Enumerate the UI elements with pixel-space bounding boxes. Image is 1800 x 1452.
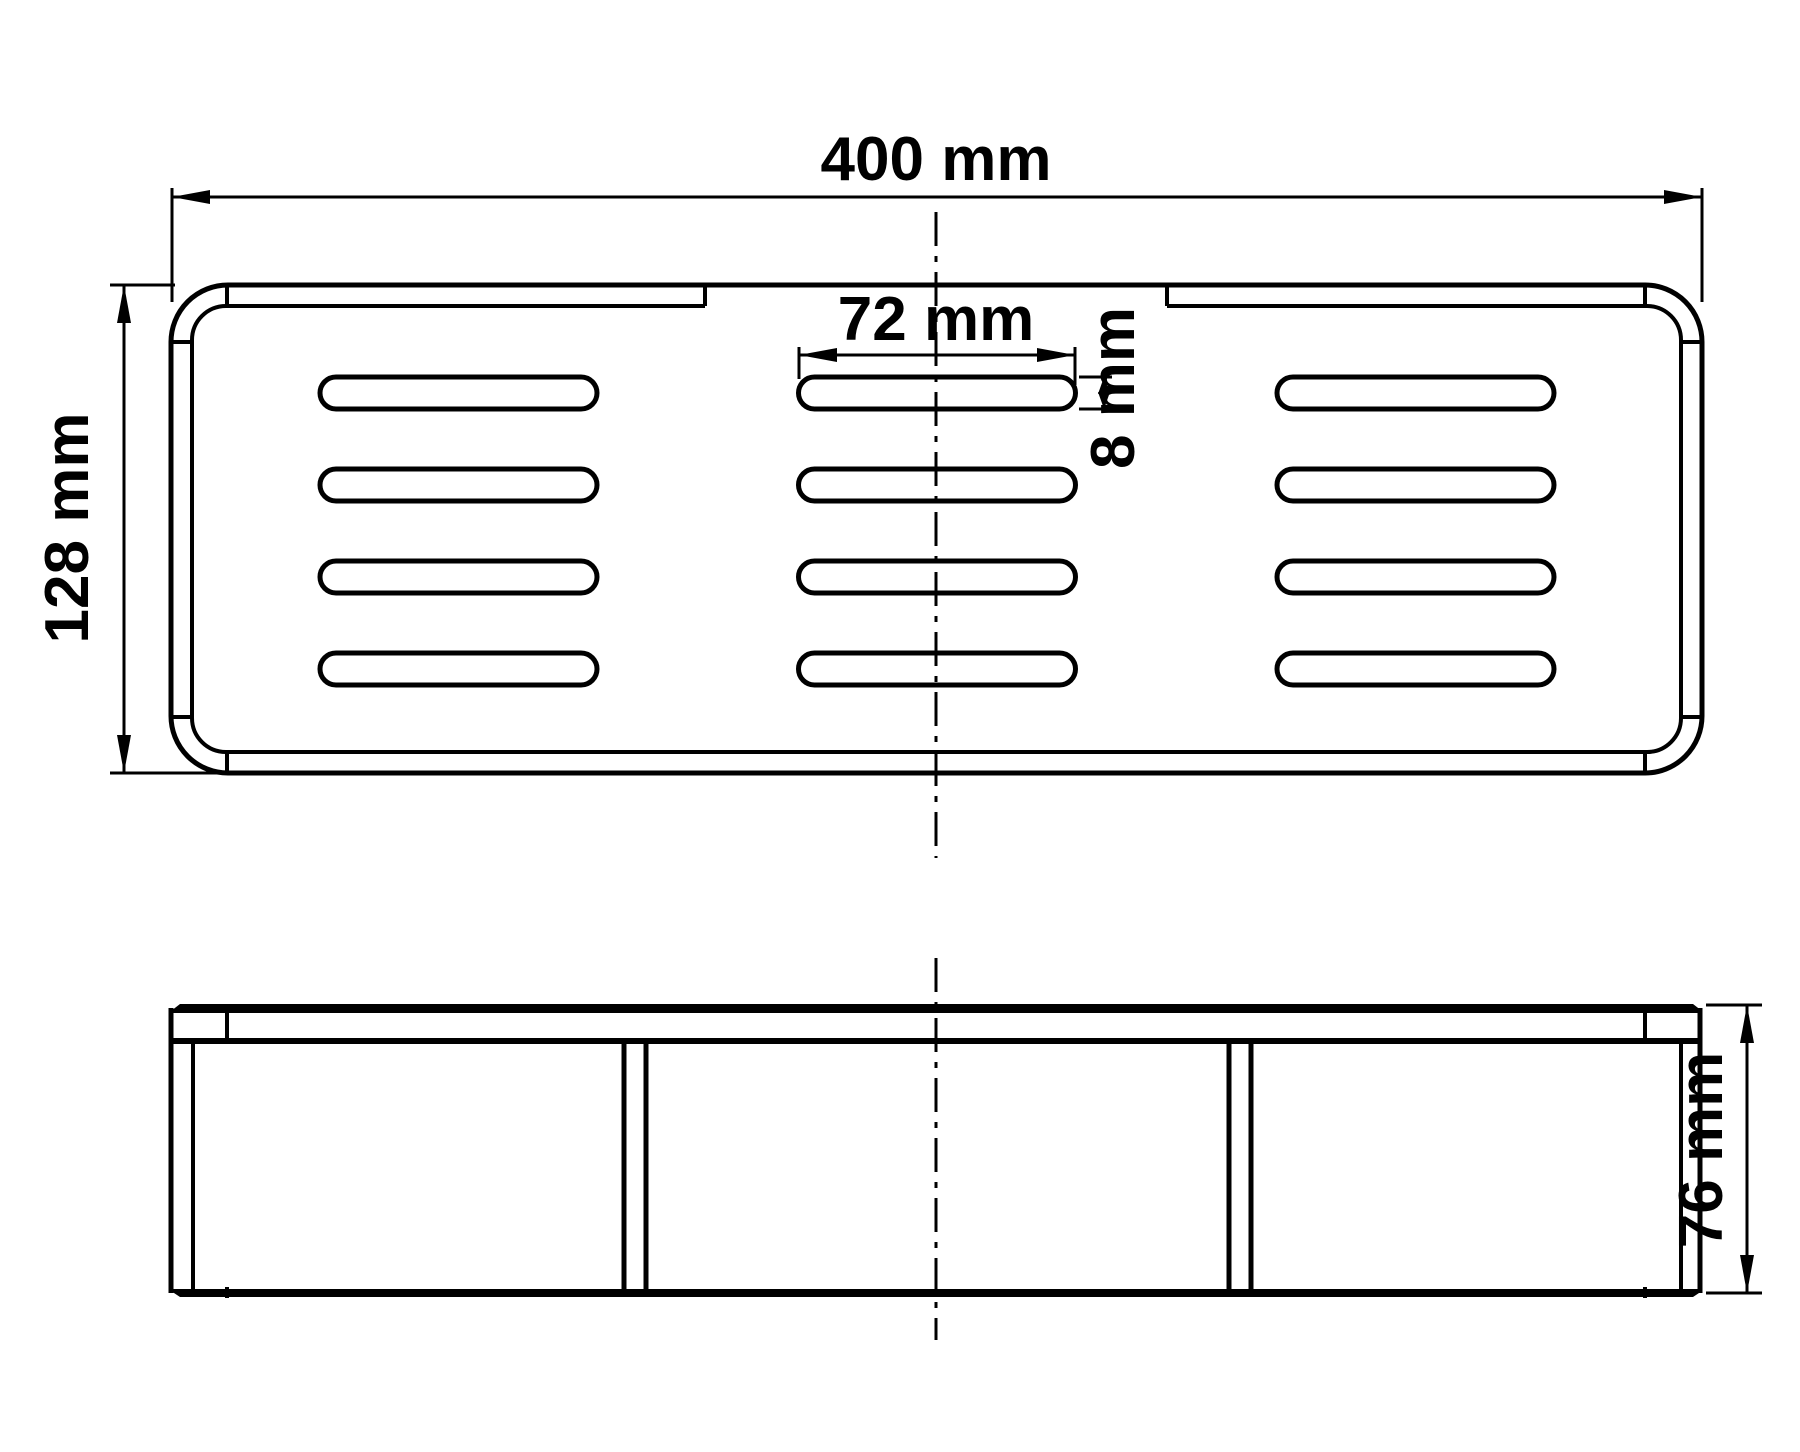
shelf-dimension-drawing: 400 mm 128 mm 72 mm 8 mm bbox=[0, 0, 1800, 1452]
technical-drawing-page: 400 mm 128 mm 72 mm 8 mm bbox=[0, 0, 1800, 1452]
arrowhead-right bbox=[1664, 190, 1702, 204]
dim-slot-length: 72 mm bbox=[799, 285, 1075, 385]
drainage-slot-r3-c3 bbox=[1277, 561, 1554, 593]
dim-label-overall-height: 76 mm bbox=[1667, 1052, 1736, 1248]
dim-slot-height: 8 mm bbox=[1079, 307, 1148, 469]
drainage-slot-r2-c1 bbox=[320, 469, 597, 501]
arrowhead-top bbox=[117, 285, 131, 323]
arrowhead-bottom bbox=[117, 735, 131, 773]
drainage-slot-r1-c3 bbox=[1277, 377, 1554, 409]
dim-label-overall-width: 400 mm bbox=[821, 125, 1052, 194]
drainage-slot-r4-c1 bbox=[320, 653, 597, 685]
dim-overall-depth: 128 mm bbox=[33, 285, 232, 773]
dim-label-overall-depth: 128 mm bbox=[33, 413, 102, 644]
side-view bbox=[171, 958, 1702, 1340]
dim-label-slot-length: 72 mm bbox=[838, 285, 1034, 354]
drainage-slot-r2-c3 bbox=[1277, 469, 1554, 501]
drainage-slot-r3-c1 bbox=[320, 561, 597, 593]
arrowhead-slot-right bbox=[1037, 348, 1075, 362]
drainage-slot-r1-c1 bbox=[320, 377, 597, 409]
dim-label-slot-height: 8 mm bbox=[1079, 307, 1148, 469]
drainage-slot-r4-c3 bbox=[1277, 653, 1554, 685]
arrowhead-slot-left bbox=[799, 348, 837, 362]
arrowhead-height-bottom bbox=[1740, 1255, 1754, 1293]
arrowhead-height-top bbox=[1740, 1005, 1754, 1043]
arrowhead-left bbox=[172, 190, 210, 204]
